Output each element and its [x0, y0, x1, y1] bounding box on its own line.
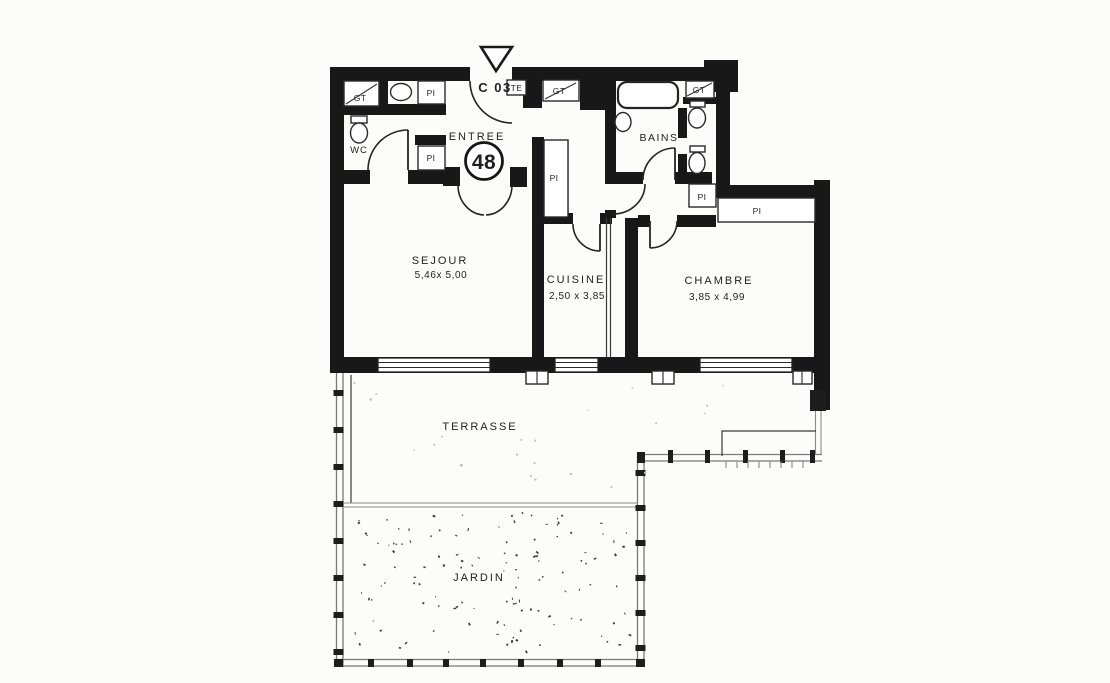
label-jardin: JARDIN — [453, 572, 505, 584]
wall-foot-lines — [816, 410, 822, 455]
wall-wing-north — [716, 185, 830, 198]
planter-edge — [722, 431, 816, 456]
label-cuisine-name: CUISINE — [547, 274, 606, 286]
label-unit-code: C 03 — [478, 80, 511, 95]
wall-east — [814, 180, 830, 410]
wall-east-upper — [716, 67, 730, 196]
label-sejour-name: SEJOUR — [412, 255, 469, 267]
wall-top-west — [330, 67, 470, 81]
bains-door-arc — [643, 148, 675, 180]
fence-west — [337, 373, 344, 667]
terrace-garden-boundaries — [334, 373, 827, 667]
window-sejour — [378, 358, 490, 372]
label-pi-hall: PI — [550, 173, 559, 183]
sejour-double-door-arc-right — [486, 185, 512, 215]
washbasin-icon-bains — [615, 113, 631, 132]
label-sejour-dims: 5,46x 5,00 — [415, 270, 468, 281]
sejour-double-door-arc-left — [458, 185, 484, 215]
label-chambre-name: CHAMBRE — [684, 275, 753, 287]
floorplan-scan: C 03 TE ENTREE 48 SEJOUR 5,46x 5,00 CUIS… — [0, 0, 1110, 683]
label-cuisine-dims: 2,50 x 3,85 — [549, 291, 605, 302]
label-unit-number: 48 — [472, 151, 496, 174]
label-pi-nook: PI — [698, 192, 707, 202]
interior-walls — [343, 78, 716, 357]
label-pi-1: PI — [427, 88, 436, 98]
label-pi-chambre: PI — [753, 206, 762, 216]
label-chambre-dims: 3,85 x 4,99 — [689, 292, 745, 303]
garden-speckles — [354, 382, 724, 653]
hall-door-arc — [613, 184, 645, 214]
cuisine-door-arc — [573, 224, 600, 251]
label-gt-2: GT — [553, 86, 566, 96]
wall-west — [330, 67, 344, 373]
window-chambre — [700, 358, 792, 372]
toilet-icon-wc — [351, 116, 368, 143]
washbasin-icon-entry — [391, 84, 412, 101]
entrance-arrow-icon — [481, 47, 512, 71]
label-gt-3: GT — [693, 85, 706, 95]
railing-hatches — [726, 461, 803, 468]
window-cuisine — [555, 358, 598, 372]
wc-door-arc — [368, 130, 408, 170]
terrace-garden-edge — [344, 503, 638, 507]
fixtures — [344, 80, 815, 222]
label-entree: ENTREE — [449, 131, 506, 143]
label-wc: WC — [350, 145, 368, 156]
fence-garden-east — [638, 455, 645, 667]
label-pi-2: PI — [427, 153, 436, 163]
label-te: TE — [511, 83, 523, 93]
pi-closet-chambre — [718, 198, 815, 222]
toilet-icon-2 — [689, 101, 706, 128]
label-terrasse: TERRASSE — [442, 421, 517, 433]
floorplan-drawing: C 03 TE ENTREE 48 SEJOUR 5,46x 5,00 CUIS… — [0, 0, 1110, 683]
railing-terrace-east — [640, 455, 822, 462]
chambre-door-arc — [650, 221, 677, 248]
thin-partition-lines — [351, 140, 611, 503]
label-bains: BAINS — [639, 132, 678, 144]
label-gt-1: GT — [354, 93, 367, 103]
bathtub-icon — [618, 82, 678, 108]
windows — [378, 358, 812, 384]
toilet-icon-3 — [689, 146, 705, 174]
